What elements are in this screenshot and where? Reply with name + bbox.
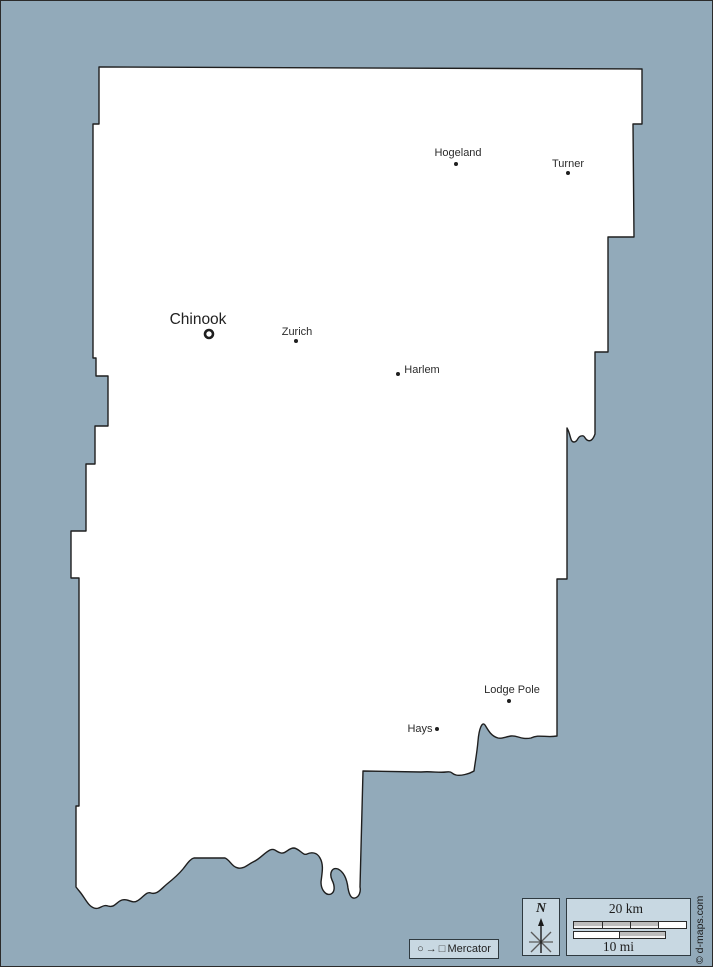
scale-km-bar (573, 921, 687, 929)
circle-icon: ○ (417, 944, 424, 955)
town-label-turner: Turner (552, 158, 584, 170)
town-marker-chinook (205, 330, 213, 338)
town-dot-harlem (396, 372, 400, 376)
scale-mi-bar (573, 931, 666, 939)
map-canvas: Chinook Zurich Harlem Hogeland Turner Lo… (0, 0, 713, 967)
town-label-chinook: Chinook (170, 311, 227, 329)
town-dot-hogeland (454, 162, 458, 166)
county-map-svg (1, 1, 713, 967)
scale-km-label: 20 km (567, 901, 685, 917)
scale-segment (619, 932, 665, 938)
scale-segment (602, 922, 630, 928)
scale-segment (658, 922, 686, 928)
scale-segment (574, 932, 619, 938)
town-label-hays: Hays (407, 723, 432, 735)
projection-label: Mercator (447, 943, 490, 955)
county-outline (71, 67, 642, 908)
scale-segment (630, 922, 658, 928)
town-dot-lodge-pole (507, 699, 511, 703)
town-dot-hays (435, 727, 439, 731)
projection-legend: ○ → □ Mercator (409, 939, 499, 959)
town-dot-zurich (294, 339, 298, 343)
town-label-lodge-pole: Lodge Pole (484, 684, 540, 696)
town-label-zurich: Zurich (282, 326, 313, 338)
scale-segment (574, 922, 602, 928)
square-icon: □ (439, 944, 446, 955)
arrow-icon: → (426, 944, 437, 955)
scale-mi-label: 10 mi (573, 939, 664, 955)
copyright-watermark: © d-maps.com (694, 888, 706, 964)
town-label-harlem: Harlem (404, 364, 439, 376)
town-dot-turner (566, 171, 570, 175)
compass-rose: N (522, 898, 560, 956)
town-label-hogeland: Hogeland (434, 147, 481, 159)
compass-n-label: N (523, 901, 559, 917)
scale-bar: 20 km 10 mi (566, 898, 691, 956)
compass-needle-icon (523, 917, 559, 955)
